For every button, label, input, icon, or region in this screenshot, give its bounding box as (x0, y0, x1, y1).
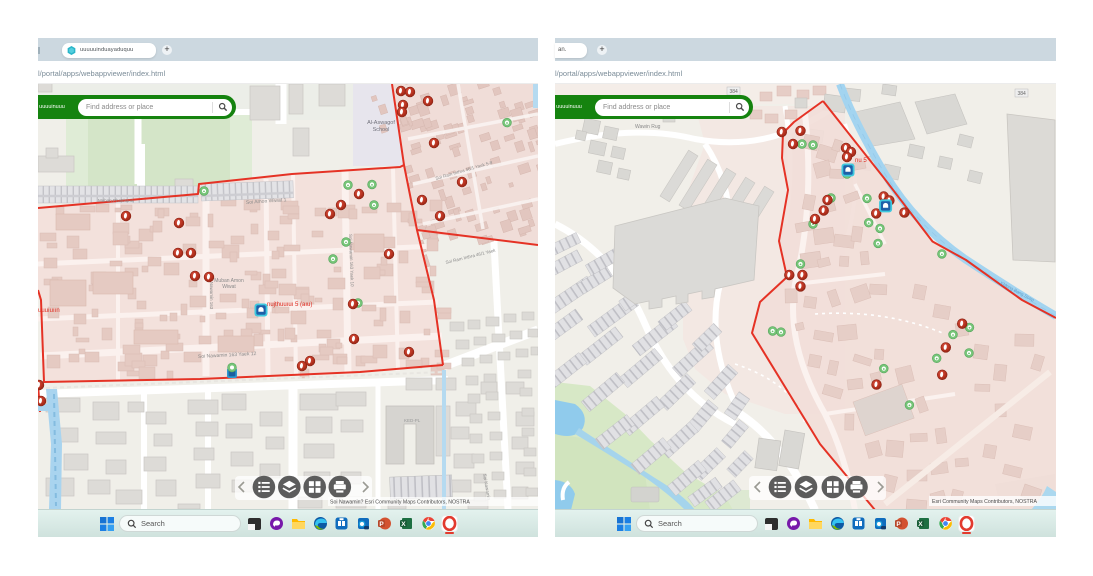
svg-text:KED-PL: KED-PL (404, 418, 421, 423)
svg-text:X: X (918, 521, 923, 528)
svg-text:Wawin Rug: Wawin Rug (635, 124, 661, 130)
svg-text:P: P (897, 521, 902, 528)
svg-text:School: School (373, 127, 390, 133)
svg-text:Wiwat: Wiwat (222, 284, 236, 290)
svg-text:X: X (401, 521, 406, 528)
svg-text:nu 5: nu 5 (855, 158, 867, 164)
svg-text:nujthuuıuı 5 (aıu): nujthuuıuı 5 (aıu) (267, 302, 312, 308)
svg-text:Esri Community Maps Contributo: Esri Community Maps Contributors, NOSTRA (932, 499, 1037, 505)
svg-text:Muban Phatthana: Muban Phatthana (98, 198, 134, 203)
svg-text:Al-Aswagof: Al-Aswagof (367, 120, 395, 126)
svg-text:uuuıuıın: uuuıuıın (38, 308, 60, 314)
svg-text:Soi Nawamin? Esri Community Ma: Soi Nawamin? Esri Community Maps Contrib… (330, 500, 470, 506)
svg-text:384: 384 (1018, 91, 1027, 97)
svg-text:P: P (380, 521, 385, 528)
